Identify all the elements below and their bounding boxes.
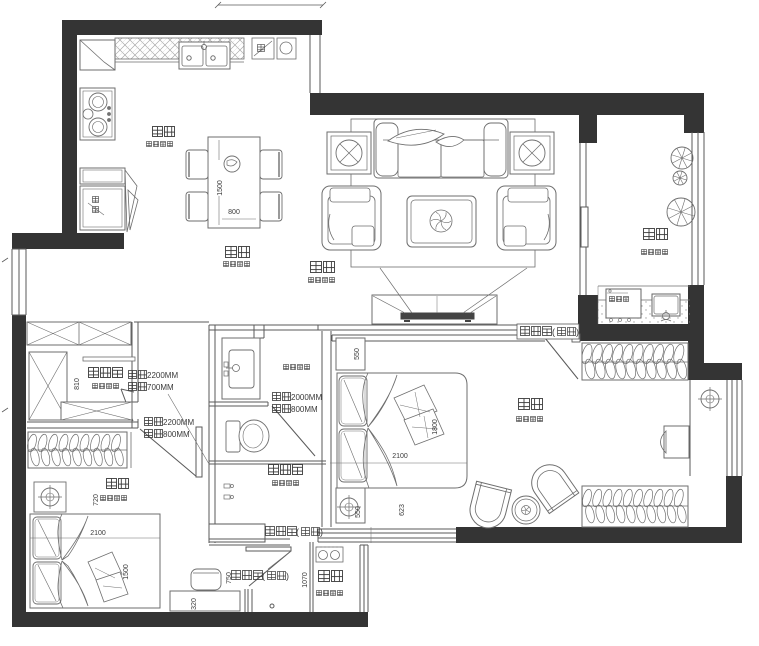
- svg-text:): ): [286, 571, 289, 581]
- svg-text:2100: 2100: [90, 530, 106, 537]
- svg-text:(: (: [296, 527, 299, 537]
- svg-text:800: 800: [228, 209, 240, 216]
- svg-text:800MM: 800MM: [163, 430, 190, 439]
- svg-text:2000MM: 2000MM: [291, 393, 322, 402]
- svg-text:): ): [576, 327, 579, 337]
- svg-text:700MM: 700MM: [147, 383, 174, 392]
- svg-text:1070: 1070: [302, 572, 309, 588]
- svg-text:320: 320: [191, 598, 198, 610]
- svg-text:1500: 1500: [217, 180, 224, 196]
- svg-text:550: 550: [355, 506, 362, 518]
- svg-text:800MM: 800MM: [291, 405, 318, 414]
- svg-text:): ): [320, 527, 323, 537]
- svg-text:2100: 2100: [392, 453, 408, 460]
- svg-text:2200MM: 2200MM: [163, 418, 194, 427]
- svg-text:(: (: [262, 571, 265, 581]
- svg-text:810: 810: [74, 378, 81, 390]
- svg-text:1500: 1500: [123, 564, 130, 580]
- svg-text:623: 623: [399, 504, 406, 516]
- svg-text:1800: 1800: [432, 419, 439, 435]
- svg-text:550: 550: [354, 348, 361, 360]
- svg-text:2200MM: 2200MM: [147, 371, 178, 380]
- svg-text:(: (: [552, 327, 555, 337]
- svg-text:720: 720: [93, 494, 100, 506]
